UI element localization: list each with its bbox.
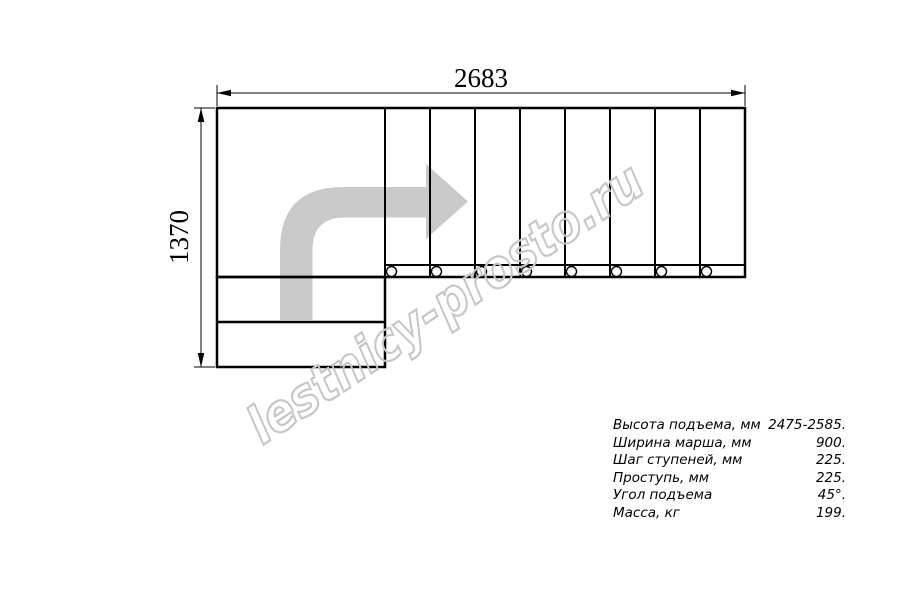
spec-label: Ширина марша, мм — [613, 435, 752, 453]
spec-value: 45°. — [818, 487, 846, 505]
dim-arrow-left-icon — [217, 90, 231, 97]
spec-label: Высота подъема, мм — [613, 417, 761, 435]
spec-row-rise-height: Высота подъема, мм 2475-2585. — [613, 417, 846, 435]
height-dimension-label: 1370 — [164, 210, 194, 264]
spec-table: Высота подъема, мм 2475-2585. Ширина мар… — [613, 417, 846, 522]
spec-value: 225. — [816, 470, 846, 488]
spec-row-flight-width: Ширина марша, мм 900. — [613, 435, 846, 453]
spec-label: Шаг ступеней, мм — [613, 452, 742, 470]
spec-value: 199. — [816, 505, 846, 523]
dim-arrow-right-icon — [731, 90, 745, 97]
dim-arrow-down-icon — [198, 353, 205, 367]
staircase-plan-canvas: 2683 1370 lestnicy-prosto.ru Высота подъ… — [0, 0, 900, 600]
spec-row-mass: Масса, кг 199. — [613, 505, 846, 523]
spec-row-tread: Проступь, мм 225. — [613, 470, 846, 488]
width-dimension-label: 2683 — [454, 63, 508, 93]
spec-value: 225. — [816, 452, 846, 470]
spec-value: 2475-2585. — [768, 417, 846, 435]
spec-row-rise-angle: Угол подъема 45°. — [613, 487, 846, 505]
spec-label: Угол подъема — [613, 487, 712, 505]
top-dimension: 2683 — [217, 63, 745, 106]
spec-label: Масса, кг — [613, 505, 680, 523]
spec-value: 900. — [816, 435, 846, 453]
spec-row-step-pitch: Шаг ступеней, мм 225. — [613, 452, 846, 470]
spec-label: Проступь, мм — [613, 470, 709, 488]
left-dimension: 1370 — [164, 108, 215, 367]
dim-arrow-up-icon — [198, 108, 205, 122]
